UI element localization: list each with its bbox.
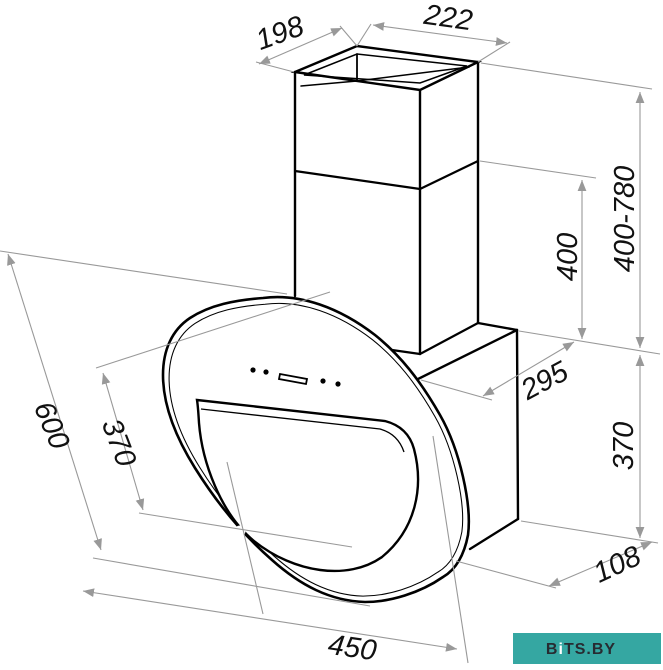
control-button-icon [263, 369, 268, 374]
watermark-part-b: B [546, 641, 559, 658]
watermark-part-rest: TS.BY [564, 641, 616, 658]
ext-line [478, 42, 510, 62]
body-bottom-edge [470, 519, 518, 549]
ext-line [456, 561, 556, 588]
ext-line [481, 63, 652, 89]
ext-line [480, 161, 596, 178]
watermark-text: BiTS.BY [546, 641, 616, 658]
body-top-front-edge [412, 330, 517, 382]
chimney-inner-wall-left [301, 81, 357, 86]
dim-label-body-bottom-depth: 108 [589, 540, 646, 589]
body-right-edge [517, 330, 518, 519]
dim-label-chimney-depth: 222 [421, 0, 474, 37]
ext-line [256, 62, 294, 72]
dim-label-chimney-section-height: 400 [552, 233, 584, 281]
glass-panel-outline [197, 400, 418, 571]
ext-line [521, 521, 658, 543]
ext-line [357, 24, 371, 46]
ext-line [421, 380, 492, 400]
dim-label-panel-width: 450 [326, 629, 378, 667]
body-top-back-edge [478, 323, 517, 330]
chimney-base-right [420, 323, 478, 354]
dim-label-chimney-width: 198 [252, 10, 308, 57]
technical-drawing-canvas: 198 222 400-780 400 295 370 108 600 370 … [0, 0, 663, 670]
watermark: BiTS.BY [513, 633, 661, 664]
dim-label-chimney-height-range: 400-780 [609, 166, 641, 272]
dim-label-body-depth: 295 [515, 355, 574, 407]
ext-line [340, 26, 357, 46]
ext-line [0, 251, 287, 294]
chimney-joint-right [420, 161, 478, 189]
range-hood-dimension-drawing: 198 222 400-780 400 295 370 108 600 370 … [0, 0, 663, 670]
ext-line [519, 331, 660, 354]
dim-line-450 [83, 591, 457, 649]
dim-label-body-height: 370 [608, 422, 640, 470]
control-button-icon [250, 367, 255, 372]
dim-label-glass-height: 370 [95, 414, 142, 471]
front-panel [163, 297, 469, 602]
control-button-icon [320, 378, 325, 383]
chimney-joint-left [295, 171, 420, 189]
control-button-icon [335, 381, 340, 386]
